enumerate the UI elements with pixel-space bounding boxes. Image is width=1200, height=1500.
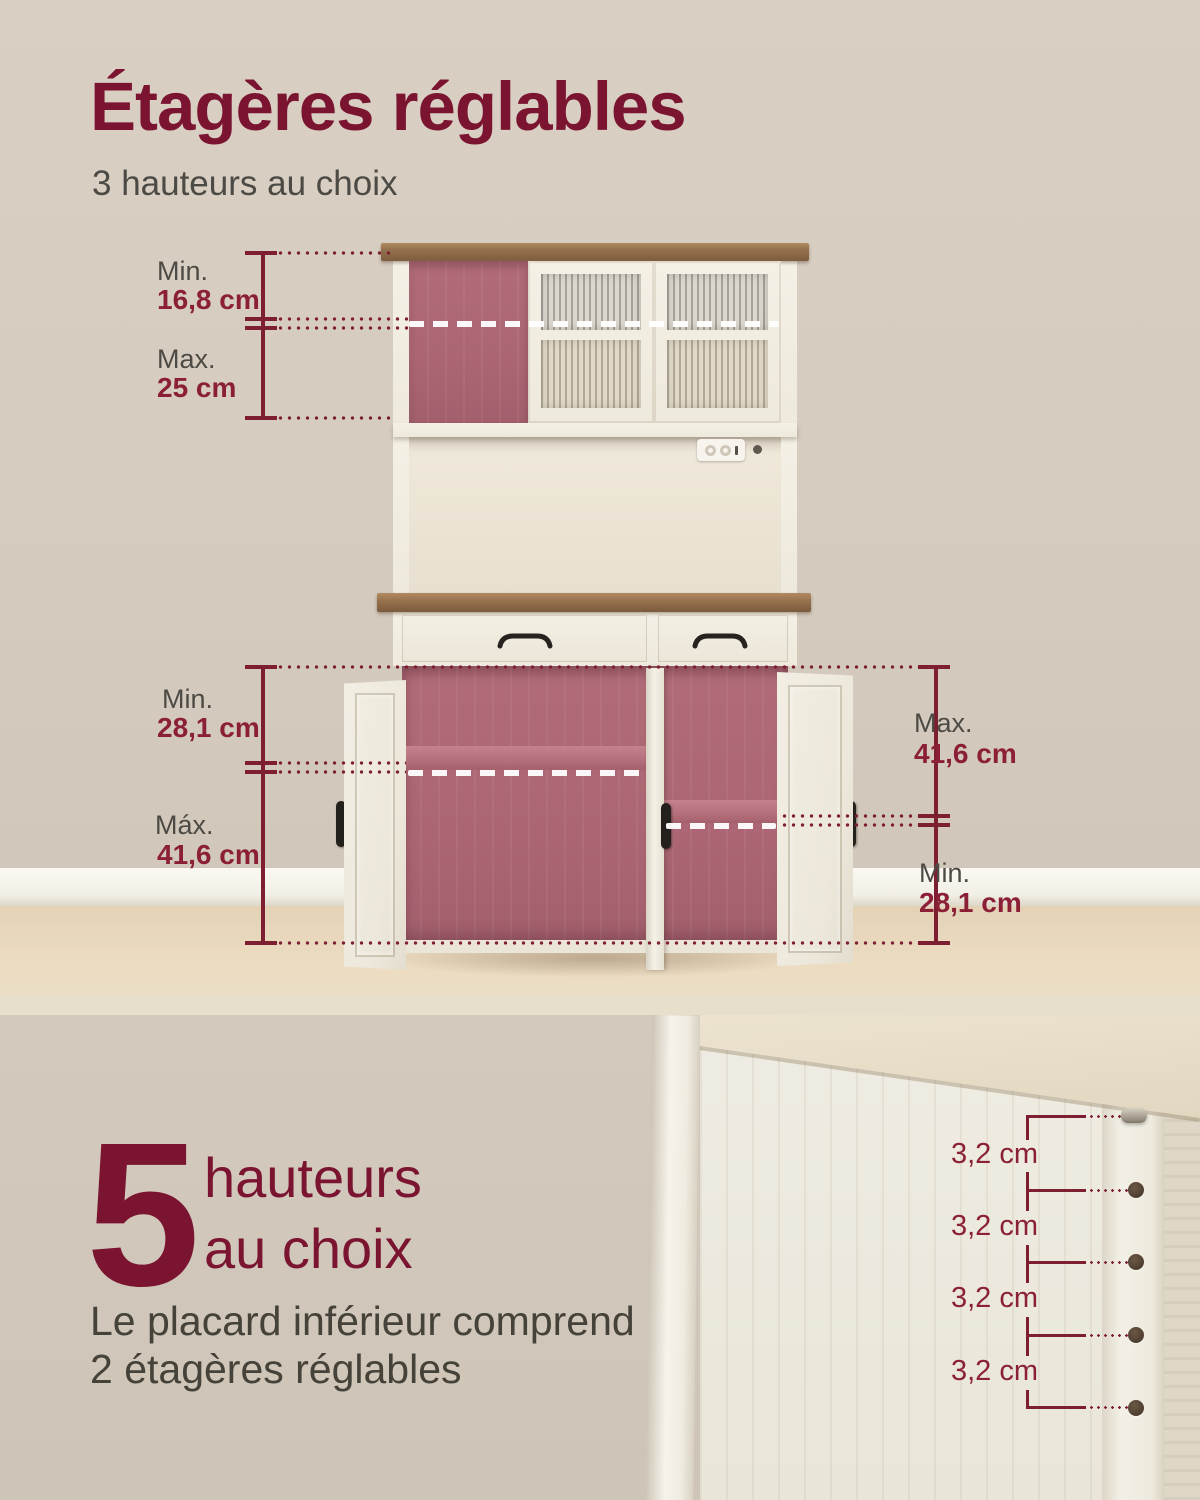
shelf-pin [1121, 1108, 1147, 1123]
door-inner-panel [788, 685, 842, 953]
dotted-guide-line [276, 317, 409, 321]
dotted-guide-line [1088, 1406, 1128, 1409]
measure-tick [918, 814, 950, 818]
lower-left-max-value: 41,6 cm [157, 841, 260, 869]
floor-light-band [0, 995, 1200, 1015]
cable-grommet-icon [753, 445, 762, 454]
lower-right-max-value: 41,6 cm [914, 740, 1017, 768]
big-number: 5 [86, 1112, 200, 1317]
measure-tick [245, 761, 277, 765]
outlet-socket-icon [705, 445, 716, 456]
measure-tick [918, 823, 950, 827]
pitch-label: 3,2 cm [920, 1140, 1038, 1169]
dotted-guide-line [276, 941, 934, 945]
countertop [377, 593, 811, 612]
lower-left-measure-line [261, 667, 265, 945]
lower-door-left [344, 680, 406, 970]
hutch-measure-line [261, 253, 265, 420]
page-title: Étagères réglables [90, 72, 686, 141]
hutch-max-value: 25 cm [157, 374, 236, 402]
lower-door-right [777, 672, 853, 966]
dotted-guide-line [1088, 1334, 1128, 1337]
hutch-side-frame-right [781, 437, 797, 593]
dotted-guide-line [276, 761, 406, 765]
dotted-guide-line [276, 326, 409, 330]
dotted-guide-line [276, 770, 406, 774]
pitch-label: 3,2 cm [920, 1357, 1038, 1386]
measure-tick [918, 665, 950, 669]
measure-tick [245, 941, 277, 945]
fluted-glass-pane [667, 340, 768, 408]
headline-line1: hauteurs [204, 1150, 422, 1206]
lower-right-max-label: Max. [914, 710, 973, 737]
lower-left-min-value: 28,1 cm [157, 714, 260, 742]
pitch-tick [1026, 1334, 1086, 1337]
pitch-tick [1026, 1406, 1086, 1409]
right-shelf-dashed-line [666, 823, 776, 829]
dotted-guide-line [1088, 1261, 1128, 1264]
shelf-hole [1128, 1327, 1144, 1343]
shelf-hole [1128, 1254, 1144, 1270]
dotted-guide-line [276, 251, 393, 255]
fluted-glass-pane [541, 340, 641, 408]
hutch-shelf-edge [393, 423, 797, 437]
headline-line2: au choix [204, 1221, 413, 1277]
hutch-shelf-dashed-line [409, 321, 779, 327]
hutch-min-label: Min. [157, 258, 208, 285]
dotted-guide-line [780, 814, 932, 818]
lower-left-min-label: Min. [162, 686, 213, 713]
door-inner-panel [355, 693, 395, 957]
lower-right-min-value: 28,1 cm [919, 889, 1022, 917]
outlet-socket-icon [720, 445, 731, 456]
measure-tick [245, 665, 277, 669]
dotted-guide-line [1088, 1115, 1122, 1118]
measure-tick [918, 941, 950, 945]
pitch-label: 3,2 cm [920, 1212, 1038, 1241]
glass-door-left [528, 261, 654, 423]
pitch-measure-line [1026, 1245, 1029, 1283]
description-line1: Le placard inférieur comprend [90, 1298, 635, 1346]
closeup-open-door-edge [645, 1015, 700, 1500]
measure-tick [245, 317, 277, 321]
right-compartment-shelf [664, 800, 780, 823]
description-line2: 2 étagères réglables [90, 1346, 462, 1394]
measure-tick [245, 416, 277, 420]
drawer-handle-icon [691, 633, 749, 649]
hutch-top-panel [381, 243, 809, 261]
power-outlet [697, 439, 745, 461]
pitch-tick [1026, 1115, 1086, 1118]
left-shelf-dashed-line [408, 770, 644, 776]
hutch-max-label: Max. [157, 346, 216, 373]
product-infographic: Étagères réglables 3 hauteurs au choix [0, 0, 1200, 1500]
page-subtitle: 3 hauteurs au choix [92, 166, 397, 201]
measure-tick [245, 326, 277, 330]
dotted-guide-line [276, 416, 395, 420]
dotted-guide-line [1088, 1189, 1128, 1192]
hutch-min-value: 16,8 cm [157, 286, 260, 314]
drawer-handle-icon [496, 633, 554, 649]
hutch-side-frame-left [393, 437, 409, 593]
usb-port-icon [735, 446, 738, 455]
hutch-open-cubby [409, 261, 528, 423]
measure-tick [245, 251, 277, 255]
shelf-hole [1128, 1400, 1144, 1416]
left-compartment-shelf [402, 746, 646, 770]
lower-right-min-label: Min. [919, 860, 970, 887]
measure-tick [245, 770, 277, 774]
pitch-label: 3,2 cm [920, 1284, 1038, 1313]
pitch-tick [1026, 1261, 1086, 1264]
pitch-measure-line [1026, 1116, 1029, 1140]
dotted-guide-line [276, 665, 934, 669]
shelf-hole [1128, 1182, 1144, 1198]
glass-door-right [654, 261, 781, 423]
dotted-guide-line [780, 823, 932, 827]
lower-left-max-label: Máx. [155, 812, 214, 839]
pitch-tick [1026, 1189, 1086, 1192]
